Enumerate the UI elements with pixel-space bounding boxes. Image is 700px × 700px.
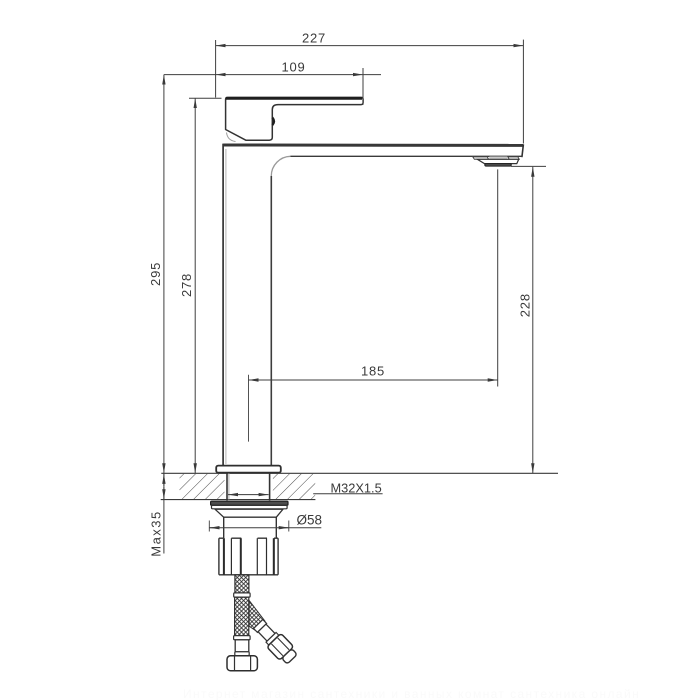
svg-text:185: 185 [361, 363, 385, 378]
svg-text:227: 227 [302, 30, 326, 45]
svg-text:228: 228 [518, 293, 533, 317]
svg-text:Ø58: Ø58 [297, 512, 323, 527]
svg-text:Интернет магазин сантехники и: Интернет магазин сантехники и ванных ком… [183, 687, 640, 700]
svg-text:Max35: Max35 [149, 510, 164, 557]
svg-text:278: 278 [179, 273, 194, 297]
svg-text:295: 295 [148, 262, 163, 286]
svg-text:109: 109 [281, 60, 305, 75]
